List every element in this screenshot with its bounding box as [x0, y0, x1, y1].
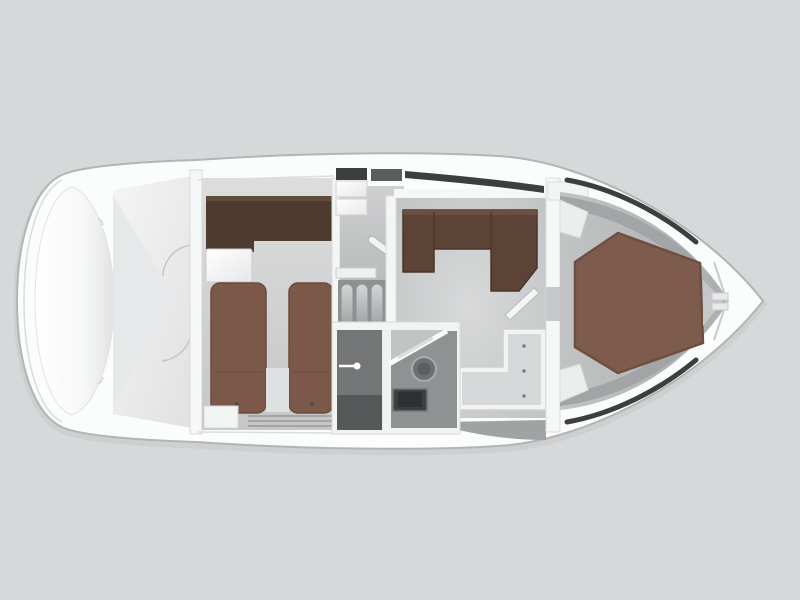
berth-foot-knob-right [310, 402, 314, 406]
guest-cabin [202, 178, 334, 430]
salon-forward-wall [386, 196, 396, 332]
bottom-deck-edge-line [198, 432, 332, 433]
wet-room [332, 322, 460, 434]
aft-deck [35, 176, 192, 428]
wet-room-divider [383, 330, 391, 430]
stair-rail-shelf [336, 268, 376, 278]
galley-knob [522, 344, 526, 348]
single-berth-left [211, 283, 266, 413]
anchor-locker-latch-lower [712, 303, 728, 310]
hull-window-slot-a [336, 168, 367, 180]
nightstand [206, 249, 252, 282]
aft-bulkhead-wall [190, 170, 202, 434]
berth-foot-knob-left [235, 402, 239, 406]
toilet-bowl [418, 363, 431, 376]
storage-box-lower [336, 199, 367, 215]
single-berth-right [289, 283, 333, 413]
berth-infill-cushion [266, 368, 289, 412]
storage-box-upper [336, 181, 367, 197]
floorplan-stage [0, 0, 800, 600]
hull-window-slot-b [371, 169, 402, 181]
sink-basin [398, 392, 422, 407]
shower-floor-dark [337, 395, 383, 430]
sofa-backrest-highlight [403, 210, 537, 215]
headboard-top-highlight [206, 196, 332, 201]
galley-knob [522, 369, 526, 373]
salon-top-wall [394, 189, 546, 198]
floorplan-canvas [0, 0, 800, 600]
galley-knob [522, 394, 526, 398]
shower-door-handle-knob [354, 363, 361, 370]
anchor-locker-latch-upper [712, 293, 728, 300]
bow-cabin-doorway [546, 287, 560, 321]
foot-locker [204, 406, 238, 428]
